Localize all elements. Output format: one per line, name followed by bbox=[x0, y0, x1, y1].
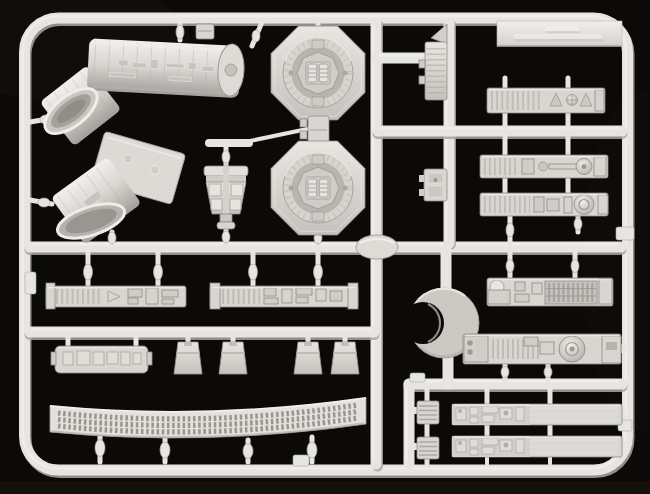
part-machinery-strip-a bbox=[487, 278, 613, 306]
embossed-text-line-1 bbox=[545, 26, 579, 31]
parallel-rail bbox=[530, 407, 618, 411]
part-greeble-strip-c bbox=[480, 193, 608, 216]
piston-rod bbox=[549, 164, 577, 169]
injection-node bbox=[356, 235, 398, 259]
parallel-rail bbox=[530, 439, 618, 443]
ring-segment-notch bbox=[402, 302, 444, 344]
parallel-rail bbox=[530, 445, 618, 449]
sprue-photo bbox=[0, 0, 650, 494]
parallel-rail bbox=[530, 451, 618, 455]
bottom-rail-tab bbox=[293, 455, 309, 466]
parallel-rail bbox=[530, 419, 618, 423]
part-rail-strip-a bbox=[452, 404, 622, 425]
h3-tab bbox=[410, 373, 425, 382]
part-detail-plate bbox=[51, 346, 152, 373]
part-turret-ring-a bbox=[271, 26, 365, 120]
part-greeble-strip-a bbox=[487, 88, 605, 113]
part-foot-pad-4 bbox=[331, 342, 359, 374]
left-rail-tab bbox=[25, 272, 36, 294]
seat-pad bbox=[231, 184, 243, 196]
part-foot-pad-2 bbox=[219, 342, 247, 374]
part-detail-box-a bbox=[417, 401, 439, 424]
part-foot-pad-3 bbox=[294, 342, 322, 374]
part-rail-block bbox=[196, 24, 214, 39]
part-rail-strip-b bbox=[452, 436, 622, 457]
part-machinery-strip-b bbox=[463, 334, 621, 364]
part-turret-ring-b bbox=[271, 141, 365, 235]
right-rail-tab bbox=[616, 227, 634, 240]
part-sidewall-strip-a bbox=[46, 283, 186, 309]
locating-pin bbox=[124, 155, 132, 163]
embossed-text-line-2 bbox=[514, 34, 602, 39]
concentric-disc bbox=[574, 195, 594, 215]
part-foot-pad-1 bbox=[174, 342, 202, 374]
seat-pad bbox=[209, 184, 221, 196]
locating-pin bbox=[151, 166, 159, 174]
part-detail-box-b bbox=[417, 437, 439, 459]
manufacturer-embossed-tab bbox=[497, 21, 622, 46]
part-greeble-strip-b bbox=[480, 155, 608, 178]
seat-pad bbox=[211, 199, 222, 210]
table-surface-edge bbox=[0, 481, 650, 494]
parallel-rail bbox=[530, 413, 618, 417]
part-sidewall-strip-b bbox=[210, 283, 358, 309]
seat-pad bbox=[230, 199, 241, 210]
